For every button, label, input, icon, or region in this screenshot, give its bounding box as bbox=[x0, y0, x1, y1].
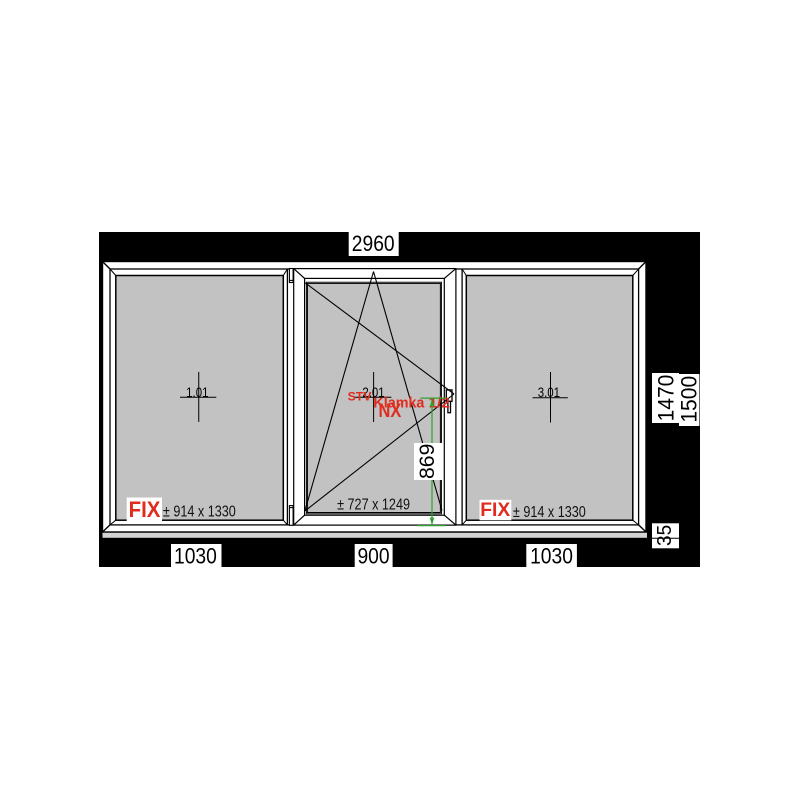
svg-text:1.01: 1.01 bbox=[186, 384, 208, 400]
svg-text:FIX: FIX bbox=[129, 497, 161, 522]
svg-text:1500: 1500 bbox=[676, 376, 701, 423]
svg-text:± 727 x 1249: ± 727 x 1249 bbox=[337, 495, 410, 513]
svg-text:1470: 1470 bbox=[654, 375, 679, 422]
svg-text:35: 35 bbox=[654, 525, 676, 546]
svg-text:1030: 1030 bbox=[174, 544, 217, 568]
svg-text:900: 900 bbox=[357, 544, 389, 568]
svg-text:± 914 x 1330: ± 914 x 1330 bbox=[513, 503, 586, 521]
svg-text:STV: STV bbox=[348, 390, 373, 404]
svg-text:3.01: 3.01 bbox=[538, 384, 560, 400]
svg-text:2960: 2960 bbox=[352, 232, 395, 256]
svg-text:± 914 x 1330: ± 914 x 1330 bbox=[163, 502, 236, 520]
svg-text:NX: NX bbox=[379, 401, 402, 422]
svg-text:1030: 1030 bbox=[530, 544, 573, 568]
svg-text:869: 869 bbox=[416, 444, 439, 479]
svg-text:FIX: FIX bbox=[480, 499, 510, 521]
